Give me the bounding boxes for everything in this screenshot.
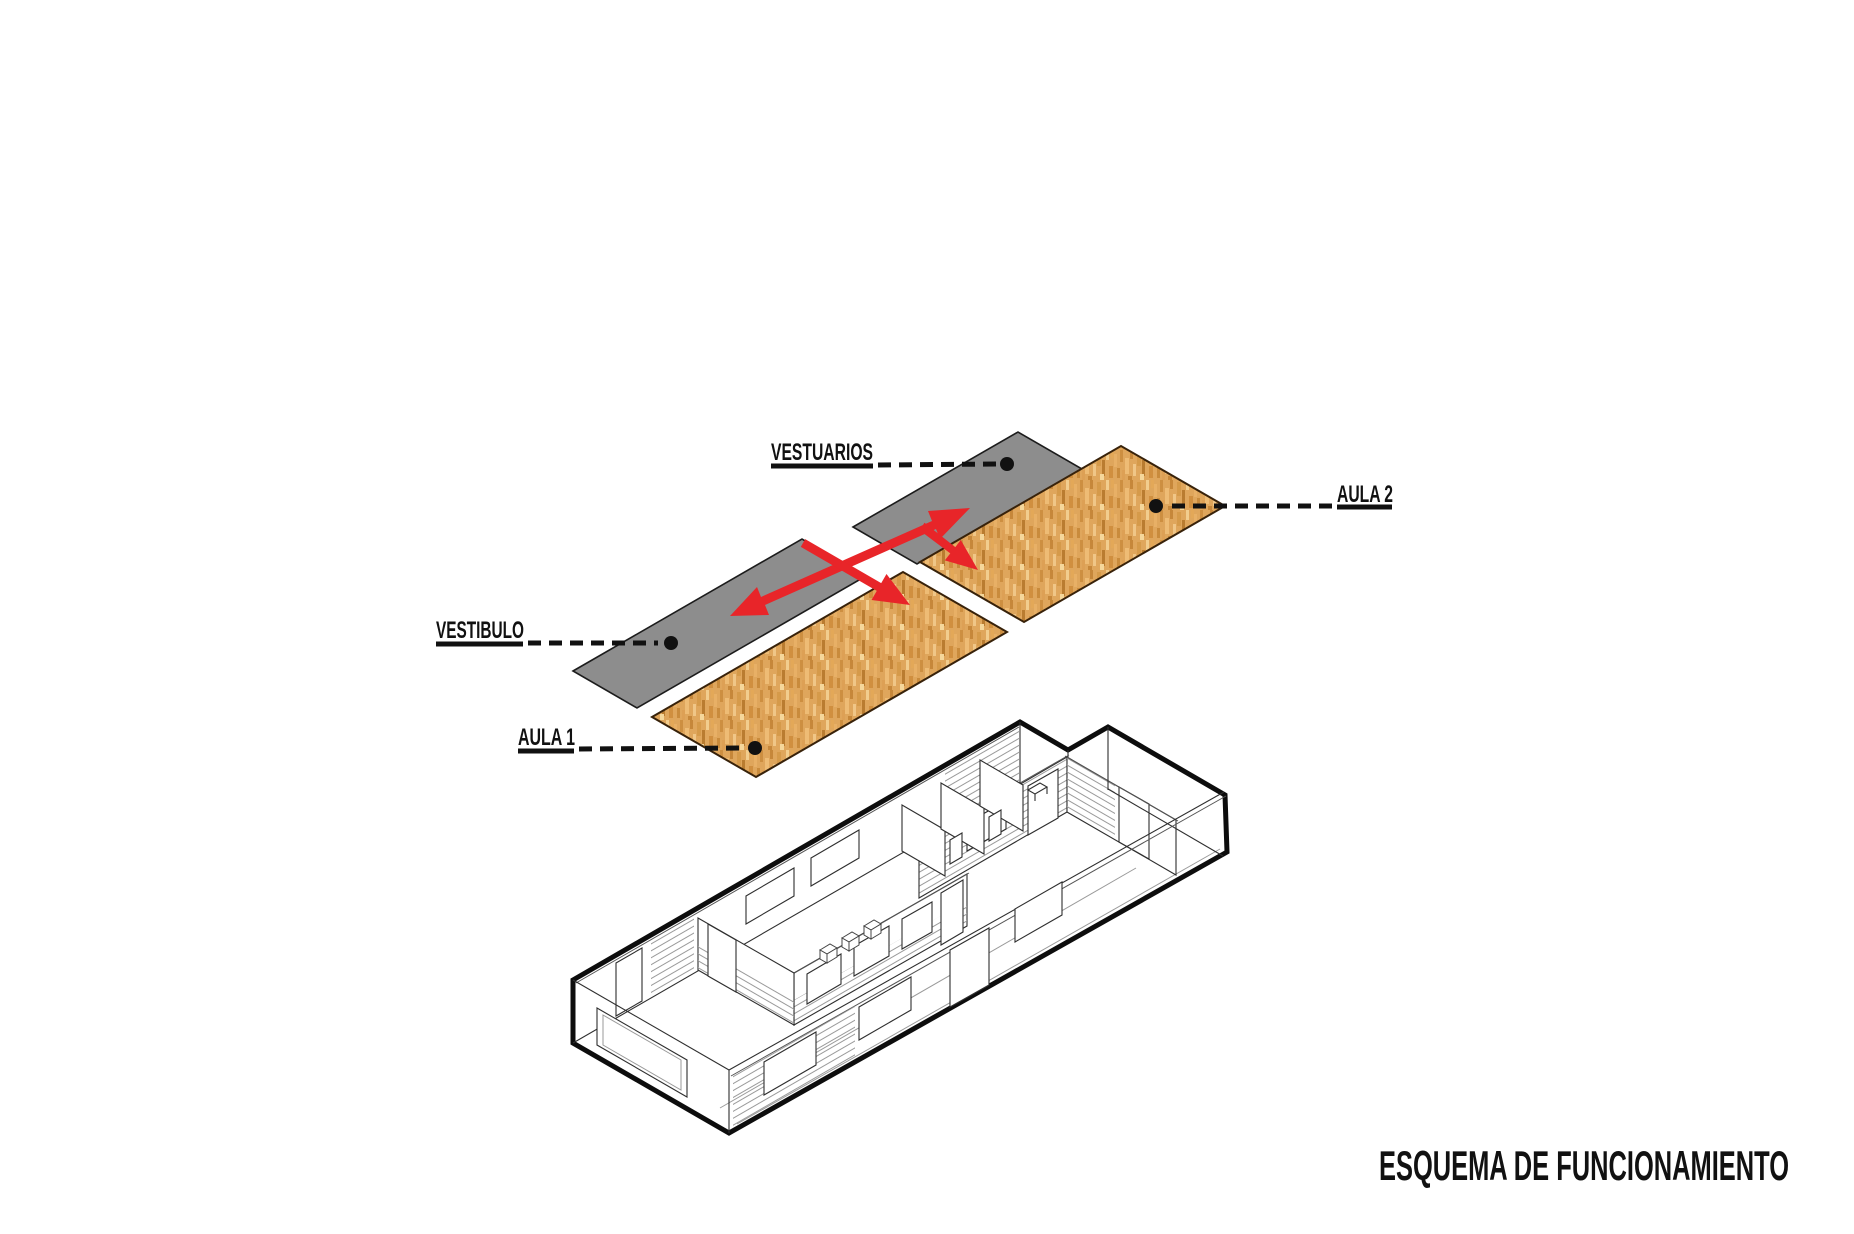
functional-scheme-diagram: VESTUARIOS AULA 2 VESTIBULO AULA 1 ESQUE… xyxy=(0,0,1854,1234)
exploded-floor-planes xyxy=(573,432,1225,777)
aula1-leader-line xyxy=(579,748,742,749)
vestuarios-leader-dot-icon xyxy=(1000,457,1014,471)
aula2-leader-dot-icon xyxy=(1149,499,1163,513)
vestibulo-leader-dot-icon xyxy=(664,636,678,650)
aula1-label: AULA 1 xyxy=(518,724,575,751)
vestuarios-label: VESTUARIOS xyxy=(771,439,873,466)
page-title: ESQUEMA DE FUNCIONAMIENTO xyxy=(1379,1142,1789,1189)
axonometric-building xyxy=(573,722,1227,1133)
vestibulo-label: VESTIBULO xyxy=(436,617,524,644)
aula1-leader-dot-icon xyxy=(748,741,762,755)
page: VESTUARIOS AULA 2 VESTIBULO AULA 1 ESQUE… xyxy=(0,0,1854,1234)
aula2-label: AULA 2 xyxy=(1337,481,1393,508)
